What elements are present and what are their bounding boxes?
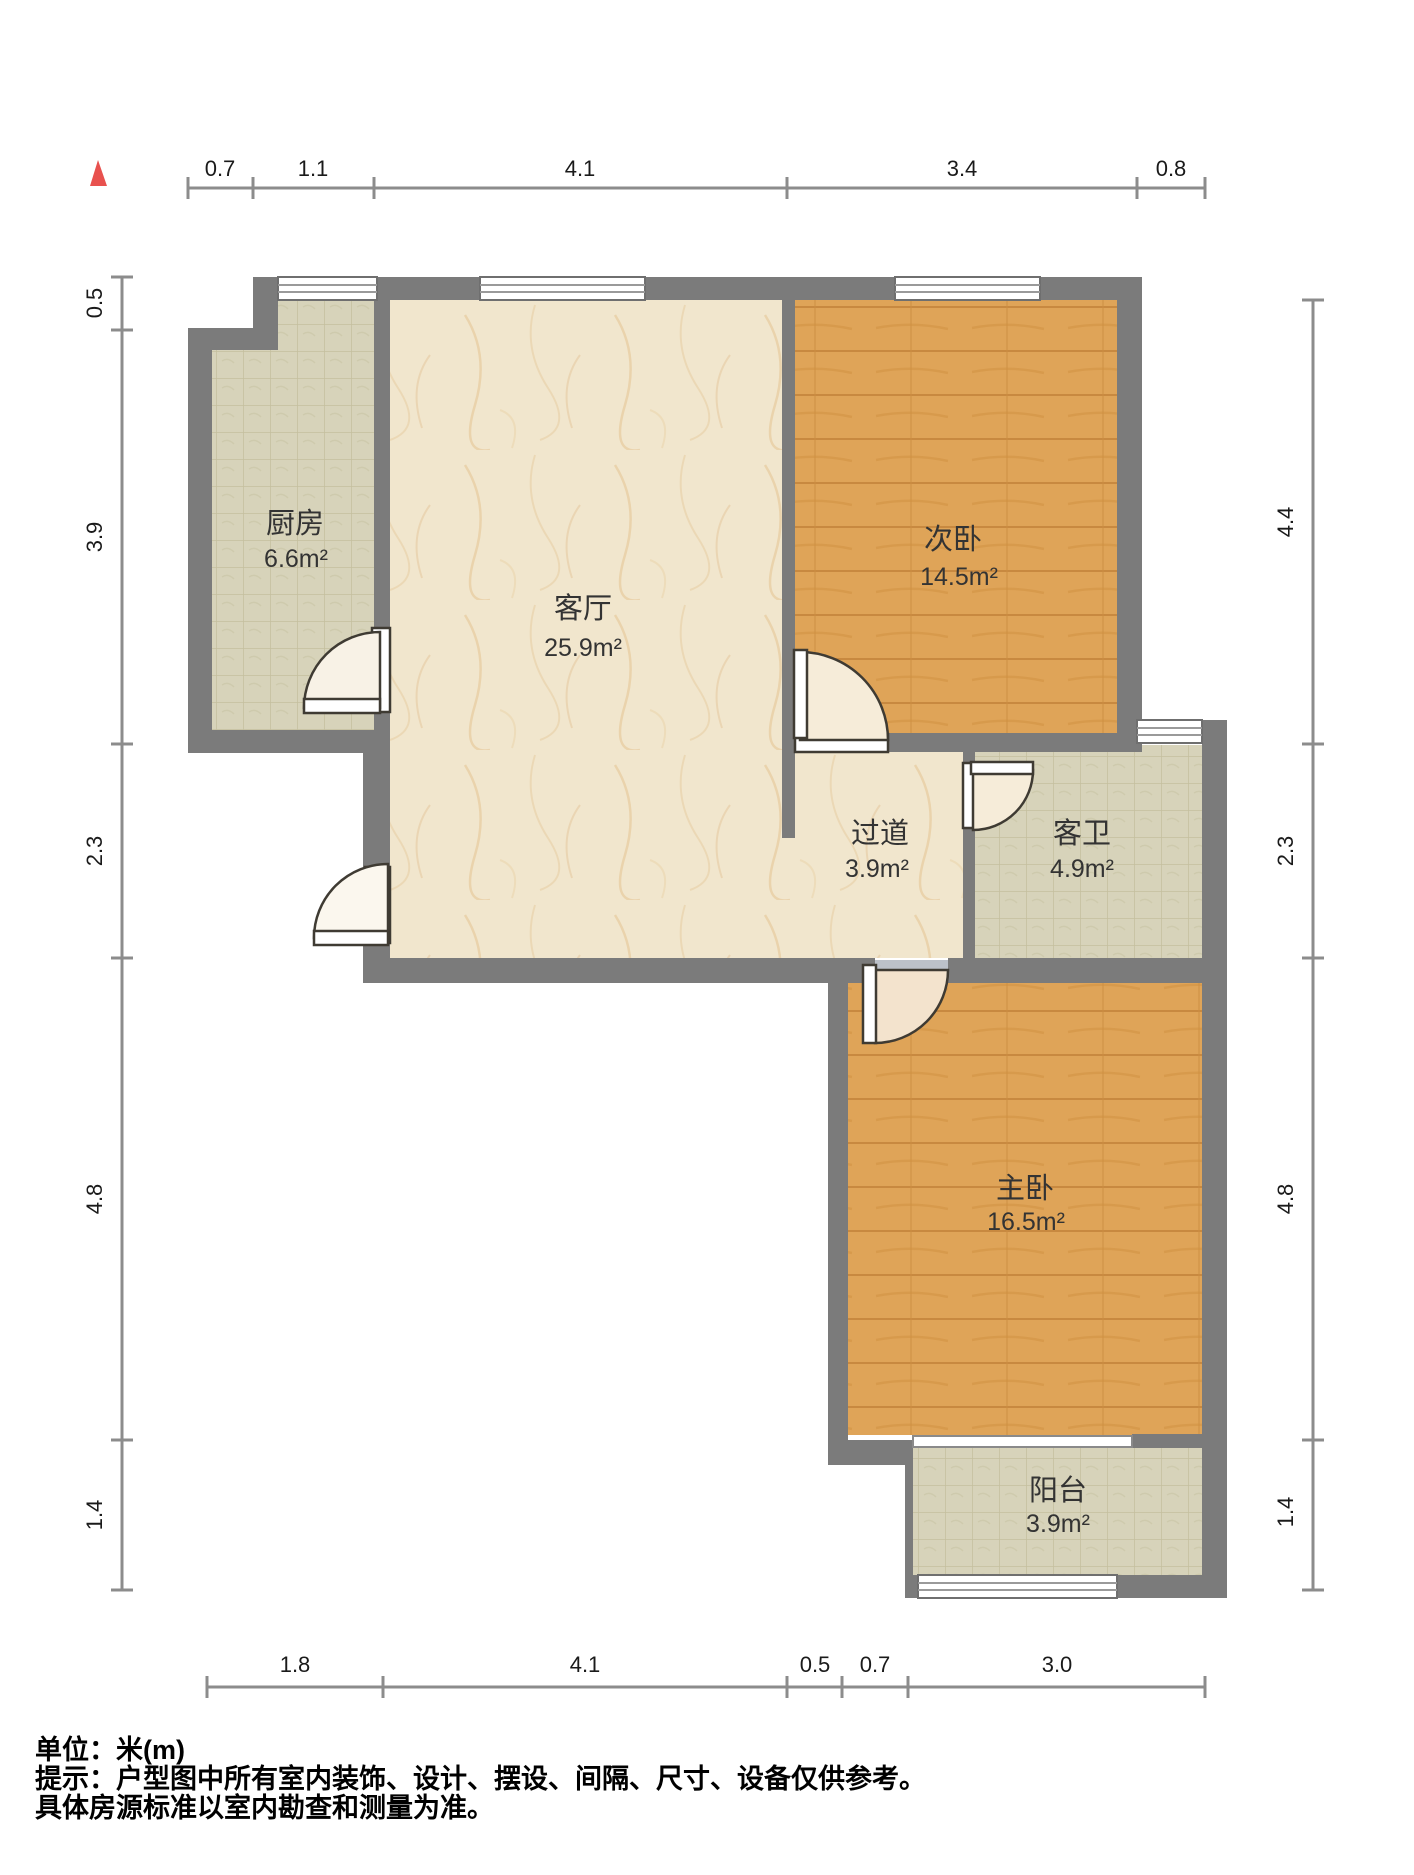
north-marker-icon	[90, 160, 107, 186]
dim-left-3: 2.3	[82, 836, 107, 867]
dim-bottom-1: 1.8	[280, 1652, 311, 1677]
footer-unit-line: 单位：米(m)	[35, 1736, 926, 1765]
dim-top-2: 1.1	[298, 156, 329, 181]
balcony-label: 阳台	[1029, 1474, 1087, 1507]
wall-master-left	[828, 958, 848, 1465]
wall-kitchen-right-lower	[374, 712, 390, 732]
wall-right-outer-bottom	[1202, 1440, 1227, 1598]
wall-bedroom2-bottom	[888, 733, 1142, 752]
dim-top-5: 0.8	[1156, 156, 1187, 181]
wall-kitchen-bottom	[188, 730, 390, 753]
dim-top-4: 3.4	[947, 156, 978, 181]
living-label: 客厅	[554, 592, 612, 625]
wall-bathroom-left-bottom	[963, 828, 975, 958]
window-bathroom-icon	[1137, 720, 1202, 743]
wall-balcony-bottom-left	[905, 1575, 918, 1598]
hallway-area: 3.9m²	[845, 855, 909, 883]
wall-top-left-step-v	[253, 277, 278, 350]
dim-bottom-5: 3.0	[1042, 1652, 1073, 1677]
dim-bottom-4: 0.7	[860, 1652, 891, 1677]
footer-standard-line: 具体房源标准以室内勘查和测量为准。	[35, 1794, 926, 1823]
wall-kitchen-left	[188, 328, 212, 753]
master-area: 16.5m²	[987, 1208, 1065, 1236]
wall-living-bottom	[363, 958, 875, 983]
dim-left-2: 3.9	[82, 522, 107, 553]
dim-bottom-2: 4.1	[570, 1652, 601, 1677]
wall-kitchen-right-upper	[374, 300, 390, 630]
bathroom-area: 4.9m²	[1050, 855, 1114, 883]
wall-balcony-left	[905, 1447, 913, 1575]
master-bedroom-floor	[848, 975, 1202, 1435]
floor-plan-canvas: 厨房 6.6m² 客厅 25.9m² 次卧 14.5m² 过道 3.9m² 客卫…	[0, 0, 1414, 1875]
kitchen-area: 6.6m²	[264, 545, 328, 573]
dim-bottom-3: 0.5	[800, 1652, 831, 1677]
window-bedroom2-icon	[895, 277, 1040, 300]
wall-living-left-upper	[363, 753, 390, 867]
dim-right-2: 2.3	[1273, 836, 1298, 867]
living-area: 25.9m²	[544, 634, 622, 662]
living-hall-gap-floor	[782, 838, 795, 960]
slider-master-balcony-icon	[913, 1436, 1132, 1447]
window-kitchen-icon	[278, 277, 377, 300]
bathroom-label: 客卫	[1053, 817, 1111, 850]
wall-master-bottom-left	[828, 1440, 913, 1465]
floor-plan-page: 厨房 6.6m² 客厅 25.9m² 次卧 14.5m² 过道 3.9m² 客卫…	[0, 0, 1414, 1875]
dim-top-3: 4.1	[565, 156, 596, 181]
footer-notes: 单位：米(m) 提示：户型图中所有室内装饰、设计、摆设、间隔、尺寸、设备仅供参考…	[35, 1736, 926, 1823]
wall-right-outer	[1202, 720, 1227, 1440]
entry-door-icon	[314, 864, 390, 945]
dim-top-1: 0.7	[205, 156, 236, 181]
hallway-label: 过道	[851, 817, 909, 850]
balcony-area: 3.9m²	[1026, 1510, 1090, 1538]
dim-left-4: 4.8	[82, 1184, 107, 1215]
dim-left-5: 1.4	[82, 1500, 107, 1531]
footer-tip-line: 提示：户型图中所有室内装饰、设计、摆设、间隔、尺寸、设备仅供参考。	[35, 1765, 926, 1794]
bedroom2-area: 14.5m²	[920, 563, 998, 591]
dim-left-1: 0.5	[82, 288, 107, 319]
wall-master-balcony-right	[1132, 1434, 1202, 1448]
dim-right-1: 4.4	[1273, 507, 1298, 538]
dim-right-3: 4.8	[1273, 1184, 1298, 1215]
kitchen-label: 厨房	[266, 507, 324, 540]
window-balcony-icon	[918, 1575, 1117, 1598]
dim-right-4: 1.4	[1273, 1497, 1298, 1528]
living-room-floor	[390, 300, 782, 960]
window-living-icon	[480, 277, 645, 300]
wall-living-bedroom2	[782, 277, 795, 838]
kitchen-floor-window-strip	[278, 300, 374, 355]
bedroom2-label: 次卧	[924, 523, 982, 556]
wall-master-top	[948, 958, 1202, 983]
wall-bedroom2-right	[1117, 277, 1142, 733]
master-label: 主卧	[996, 1172, 1054, 1205]
